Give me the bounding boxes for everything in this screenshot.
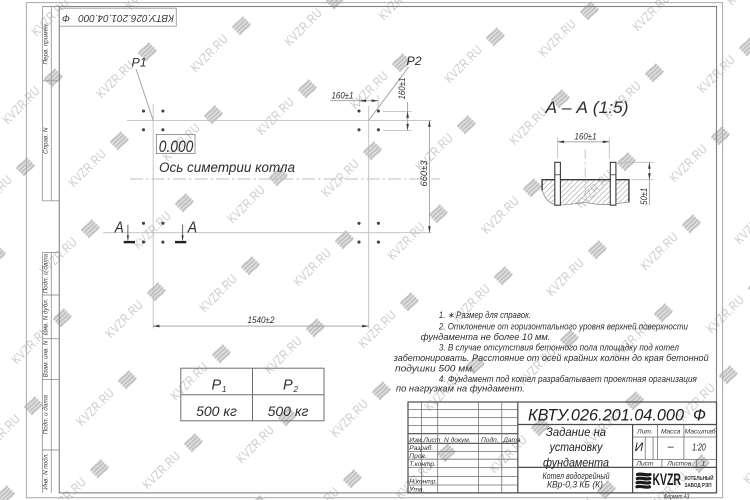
svg-text:А: А [187,220,197,237]
svg-text:ЗАВОД РЭП: ЗАВОД РЭП [685,483,712,489]
svg-text:А – А (1:5): А – А (1:5) [544,99,628,117]
svg-text:N докум.: N докум. [444,436,471,444]
svg-text:КВр-0,3 КБ (К): КВр-0,3 КБ (К) [547,480,603,490]
svg-text:160±1: 160±1 [397,78,407,100]
svg-text:KVZR: KVZR [653,471,682,489]
svg-text:1. ∗ Размер для справок.: 1. ∗ Размер для справок. [439,310,531,320]
svg-text:Лист: Лист [636,460,654,467]
svg-text:Пров.: Пров. [409,453,427,460]
svg-text:50±1: 50±1 [639,188,649,205]
svg-text:160±1: 160±1 [332,91,354,101]
svg-text:по нагрузкам на фундамент.: по нагрузкам на фундамент. [396,384,525,394]
svg-text:Перв. примен.: Перв. примен. [43,23,50,65]
svg-text:Справ. N: Справ. N [43,127,50,154]
svg-text:Подп.: Подп. [481,436,499,444]
svg-text:Изм.Лист: Изм.Лист [409,437,441,444]
svg-text:Масса: Масса [661,428,681,435]
svg-text:Формат А3: Формат А3 [664,494,690,500]
svg-text:1: 1 [222,385,226,394]
svg-text:1540±2: 1540±2 [248,315,275,325]
svg-text:Р: Р [212,378,222,394]
svg-text:Р2: Р2 [407,54,422,68]
svg-text:Задание на: Задание на [546,425,606,439]
svg-text:1: 1 [702,460,706,467]
svg-text:Ось симетрии котла: Ось симетрии котла [159,160,295,175]
svg-text:Подп. и дата: Подп. и дата [42,394,50,434]
svg-text:установку: установку [549,440,603,454]
svg-text:подушки 500 мм.: подушки 500 мм. [395,363,475,373]
svg-text:Дата: Дата [502,437,521,444]
svg-text:фундамента не более 10 мм.: фундамента не более 10 мм. [421,332,551,342]
svg-text:Взам. инв. N: Взам. инв. N [43,340,50,377]
svg-text:Н.контр.: Н.контр. [409,478,437,485]
svg-text:3. В случае отсутствия бетонно: 3. В случае отсутствия бетонного пола пл… [439,343,679,353]
svg-text:2: 2 [293,385,299,394]
svg-text:И: И [635,440,644,454]
svg-text:Лит.: Лит. [636,428,653,435]
svg-text:Листов: Листов [666,460,692,467]
svg-text:500 кг: 500 кг [196,403,237,419]
svg-text:КОТЕЛЬНЫЙ: КОТЕЛЬНЫЙ [685,474,714,482]
svg-text:Р: Р [283,378,293,394]
svg-text:Разраб.: Разраб. [409,444,433,452]
svg-text:1:20: 1:20 [692,442,706,454]
svg-text:Инв. N подл.: Инв. N подл. [42,453,50,490]
svg-text:Инв. N дубл.: Инв. N дубл. [42,299,50,335]
svg-text:4. Фундамент под котел разраба: 4. Фундамент под котел разрабатывает про… [439,374,697,384]
svg-text:фундамента: фундамента [543,455,609,469]
svg-text:КВТУ.026.201.04.000 Ф: КВТУ.026.201.04.000 Ф [62,12,174,23]
svg-text:забетонировать. Расстояние от: забетонировать. Расстояние от осей крайн… [393,353,709,363]
svg-text:–: – [667,441,675,453]
svg-text:160±1: 160±1 [575,132,597,142]
svg-text:Подп. и дата: Подп. и дата [42,253,50,293]
svg-text:Масштаб: Масштаб [685,427,716,435]
svg-text:0.000: 0.000 [159,137,194,156]
svg-text:Утв.: Утв. [408,486,424,493]
svg-text:КВТУ.026.201.04.000 Ф: КВТУ.026.201.04.000 Ф [528,407,706,425]
svg-text:Т.контр.: Т.контр. [409,461,436,468]
svg-text:660±3: 660±3 [419,161,429,187]
svg-text:А: А [114,220,124,237]
svg-text:500 кг: 500 кг [268,403,309,419]
svg-text:2. Отклонение от горизонтально: 2. Отклонение от горизонтального уровня … [438,321,688,331]
svg-text:Р1: Р1 [132,55,147,69]
